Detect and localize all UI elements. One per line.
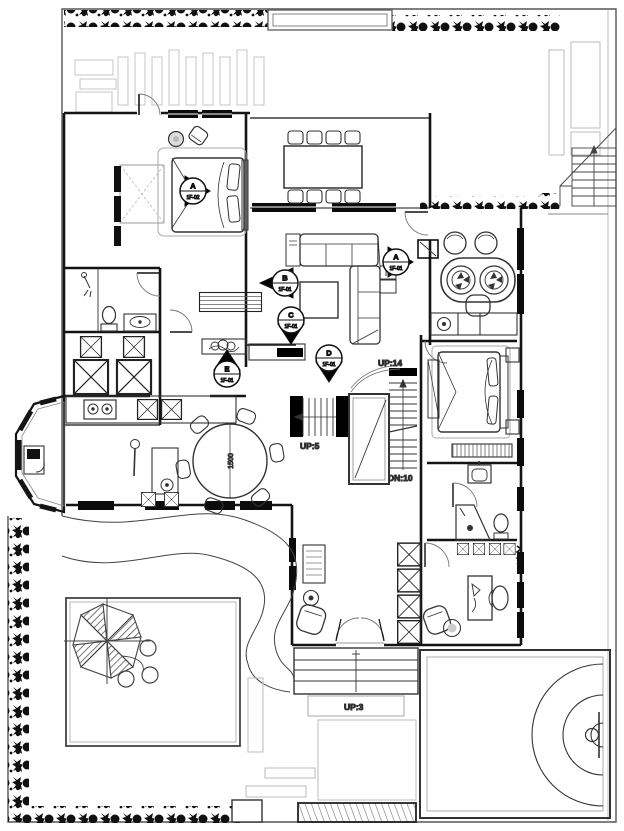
svg-text:1F-01: 1F-01: [278, 287, 291, 293]
gate-slab: [232, 800, 262, 822]
hedge-top-left: [64, 10, 268, 27]
door-hall: [170, 310, 192, 332]
table-diameter-label: 1500: [228, 453, 235, 469]
patio: [549, 42, 600, 155]
svg-text:A: A: [190, 182, 196, 191]
marker-c-living: C 1F-01: [278, 307, 304, 344]
dining-chairs: [288, 131, 360, 203]
toilet-2: [494, 514, 508, 539]
bay-window: [16, 396, 64, 512]
svg-text:1F-01: 1F-01: [220, 378, 233, 384]
marker-b-living: B 1F-01: [260, 268, 298, 298]
office-chair: [492, 586, 508, 610]
svg-text:D: D: [326, 349, 332, 358]
closet: [74, 337, 151, 394]
stair-up14-label: UP:14: [378, 358, 402, 368]
stair-dn10-label: DN:10: [388, 473, 413, 483]
shower: [456, 505, 490, 540]
living-room: [249, 234, 396, 360]
hall-console: [202, 339, 246, 354]
floor-plan-drawing: 1500: [0, 0, 624, 831]
breakfast-table: 1500: [175, 407, 284, 515]
tea-room: [418, 232, 517, 335]
svg-text:1F-01: 1F-01: [284, 324, 297, 330]
bookcase-column: [398, 543, 421, 643]
parasol: [64, 598, 150, 684]
svg-text:B: B: [282, 274, 288, 283]
driveway: [75, 50, 264, 112]
coffee-table: [300, 282, 338, 318]
kitchen: [66, 396, 236, 507]
shower-head-icon: [82, 273, 92, 298]
garden-stool: [140, 640, 156, 656]
bedroom1: [114, 125, 262, 312]
plant-icon: [131, 440, 140, 449]
door-study: [425, 543, 449, 567]
door-bath1: [137, 273, 160, 296]
desk-lamp-icon: [472, 584, 480, 596]
main-staircase: UP:14 UP:5 DN:10: [290, 358, 417, 484]
hedge-garden-left: [8, 518, 29, 822]
armchair-2: [295, 603, 328, 637]
tv-console: [249, 344, 305, 360]
hedge-patio: [420, 196, 547, 209]
bathroom1: [82, 268, 157, 332]
garden: [62, 514, 315, 797]
svg-text:1F-01: 1F-01: [322, 362, 335, 368]
hedge-stair-side: [540, 193, 560, 209]
sink: [124, 314, 156, 331]
marker-e-hall: E 1F-01: [214, 350, 240, 387]
bedroom1-chair: [187, 125, 209, 146]
basketball-court: [420, 650, 610, 818]
dining-room: [284, 131, 362, 203]
door-living-ne: [405, 212, 428, 235]
marker-a-living: A 1F-01: [383, 247, 413, 277]
porch-up3-label: UP:3: [344, 702, 364, 712]
entry-porch: UP:3: [294, 648, 418, 800]
floor-plan: 1500: [0, 0, 624, 831]
door-bath2: [453, 483, 477, 507]
stove: [84, 400, 116, 419]
garden-stool: [142, 667, 158, 683]
garden-stool: [118, 671, 134, 687]
bathroom2: [456, 461, 521, 564]
bench: [452, 444, 512, 457]
marker-a-bedroom: A 1F-02: [180, 176, 210, 206]
canopy: [268, 10, 392, 30]
hedge-strips: [8, 10, 560, 823]
dining-table: [284, 146, 362, 188]
doors: [137, 94, 477, 643]
svg-text:A: A: [393, 253, 399, 262]
hedge-top-right: [392, 15, 560, 31]
svg-text:C: C: [288, 311, 294, 320]
family-room: [295, 543, 421, 643]
shoe-shelf: [200, 293, 262, 312]
island-counter: [152, 448, 178, 494]
door-front-double: [336, 618, 384, 643]
marker-d-living: D 1F-01: [316, 345, 342, 382]
svg-text:E: E: [224, 365, 229, 374]
entrance-mat: [298, 803, 416, 822]
svg-text:1F-01: 1F-01: [389, 266, 402, 272]
toilet: [101, 307, 117, 332]
study: [421, 576, 508, 637]
hedge-garden-bottom: [22, 806, 240, 823]
desk: [468, 576, 492, 620]
stair-up5-label: UP:5: [300, 441, 320, 451]
svg-text:1F-02: 1F-02: [186, 195, 199, 201]
